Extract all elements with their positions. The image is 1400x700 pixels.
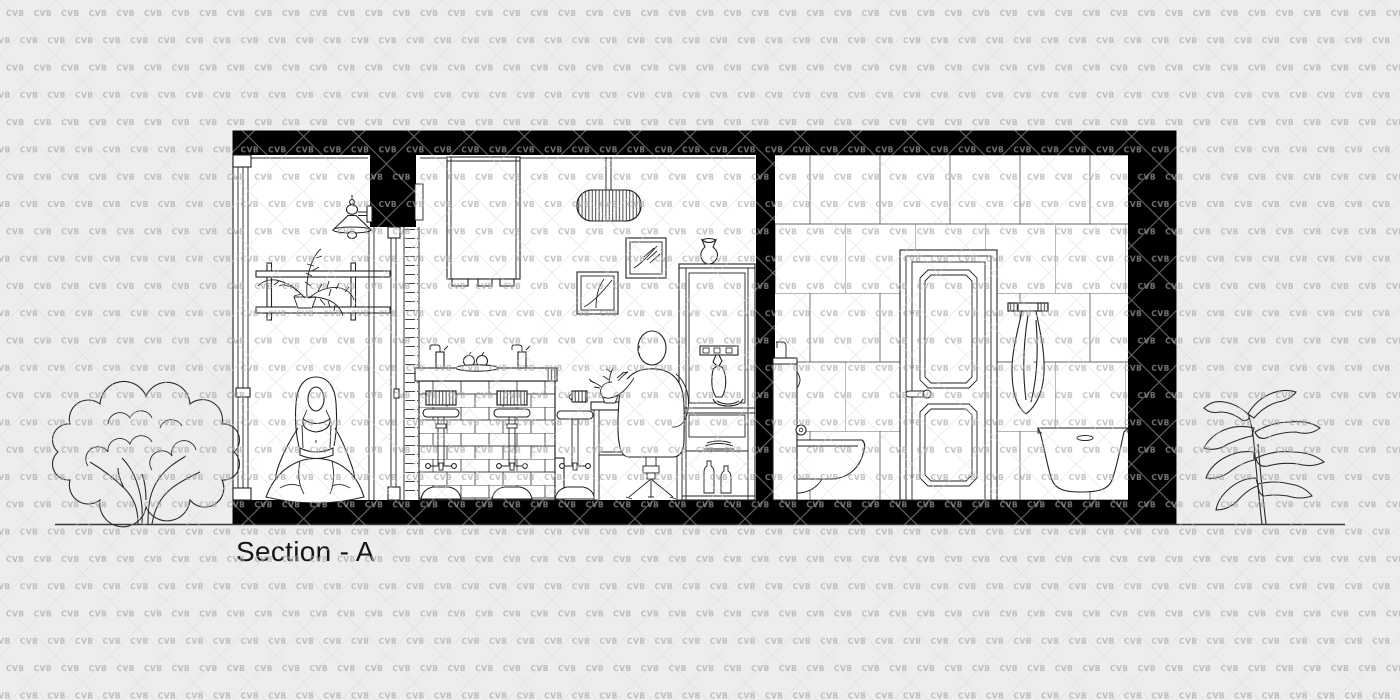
section-a-canvas: CVB CVB CVB CVB CVB [0,0,1400,700]
section-drawing: CVB CVB CVB CVB CVB [0,0,1400,700]
watermark-overlay [0,0,1400,700]
